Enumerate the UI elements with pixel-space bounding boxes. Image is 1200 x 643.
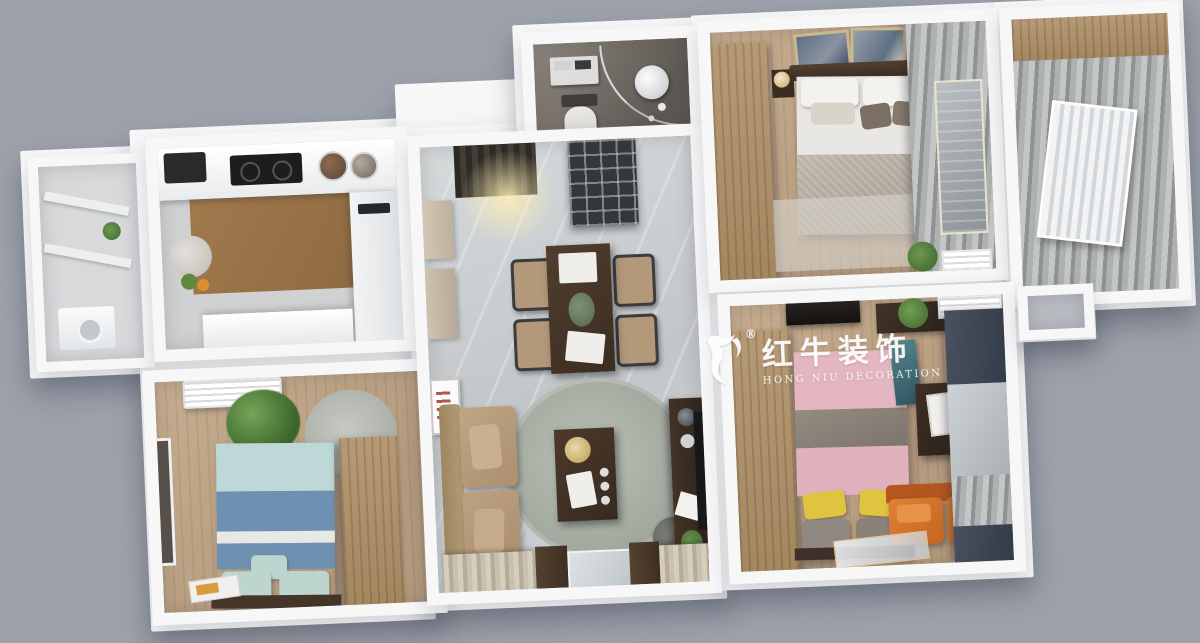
gold-bowl [564, 436, 591, 463]
coffee-table [554, 427, 618, 522]
cooktop [230, 153, 303, 186]
bed-stripe [217, 531, 335, 544]
watermark: ® 红牛装饰 HONG NIU DECORATION [701, 321, 933, 389]
ac-unit [941, 249, 992, 271]
wardrobe [710, 42, 776, 280]
tan-sofa [439, 401, 526, 576]
bed-sheet-light [216, 443, 334, 492]
placemat [565, 331, 606, 365]
bed-blanket-denim [216, 491, 334, 532]
dining-chair [612, 253, 656, 307]
navy-curtain [953, 524, 1014, 563]
cup [600, 468, 609, 477]
master-bedroom [697, 8, 1009, 293]
radiator [1037, 100, 1138, 247]
blue-bedroom [142, 358, 448, 626]
curtain [659, 543, 710, 583]
bull-logo-icon: ® [701, 329, 755, 389]
curtain-dark-panel [629, 541, 661, 584]
wardrobe [339, 436, 404, 605]
curtain [443, 551, 537, 593]
window-blinds [934, 79, 989, 235]
dining-table [546, 243, 616, 374]
kitchen-side-counter [349, 191, 403, 343]
coffee-machine [163, 152, 206, 184]
window-glass [947, 382, 1011, 477]
placemat [558, 252, 597, 284]
towel-shelf [550, 56, 599, 86]
hall-cabinet [425, 268, 458, 339]
table-centerpiece-plant [568, 292, 595, 327]
gray-curtain [951, 474, 1013, 527]
tv-wall-panel [786, 300, 861, 325]
burner [272, 160, 293, 181]
kitchen [145, 126, 417, 362]
pot [317, 151, 348, 182]
plant [102, 222, 121, 241]
brand-name: 红牛装饰 [761, 333, 942, 372]
accent-pillow [811, 102, 855, 124]
burner [240, 161, 261, 182]
pot [350, 151, 379, 180]
vent-strip [358, 203, 390, 214]
magazine-cover [196, 582, 219, 595]
brown-pillow [859, 102, 892, 130]
gray-blanket [795, 407, 908, 448]
kitchen-wood-floor [189, 192, 358, 294]
sofa-pillow [896, 504, 931, 523]
hall-cabinet [422, 200, 455, 259]
curtain-wall [944, 308, 1014, 562]
drying-rail [43, 191, 129, 216]
cup [600, 482, 609, 491]
yellow-pillow [802, 489, 847, 520]
entry-dining-living [407, 123, 722, 605]
drying-rail [44, 243, 132, 268]
navy-curtain [944, 308, 1007, 385]
window [154, 438, 176, 567]
registered-mark: ® [745, 327, 758, 342]
decor-sphere [680, 434, 695, 449]
apartment-floor-plan: ® 红牛装饰 HONG NIU DECORATION [0, 0, 1193, 643]
right-balcony [999, 0, 1192, 308]
washing-machine [58, 306, 116, 350]
toilet-tank [561, 94, 597, 108]
washer-door [76, 316, 103, 343]
glass-partition [567, 138, 639, 227]
floor-plan-screenshot: { "watermark": { "brand": "红牛装饰", "subti… [0, 0, 1200, 640]
sofa-pillow [468, 423, 503, 470]
side-balcony [27, 152, 154, 372]
balcony-cabinet [1011, 13, 1169, 62]
cup [601, 496, 610, 505]
towel [554, 61, 572, 71]
dining-chair [615, 313, 659, 367]
curtains [905, 21, 996, 272]
balcony-door-glass [567, 549, 633, 592]
wall-stub-room [1017, 283, 1095, 340]
open-book [566, 471, 598, 509]
sofa-pillow [474, 509, 504, 553]
toiletries [575, 60, 591, 70]
curtain-dark-panel [535, 545, 569, 588]
kitchen-lower-cabinet [203, 309, 354, 350]
